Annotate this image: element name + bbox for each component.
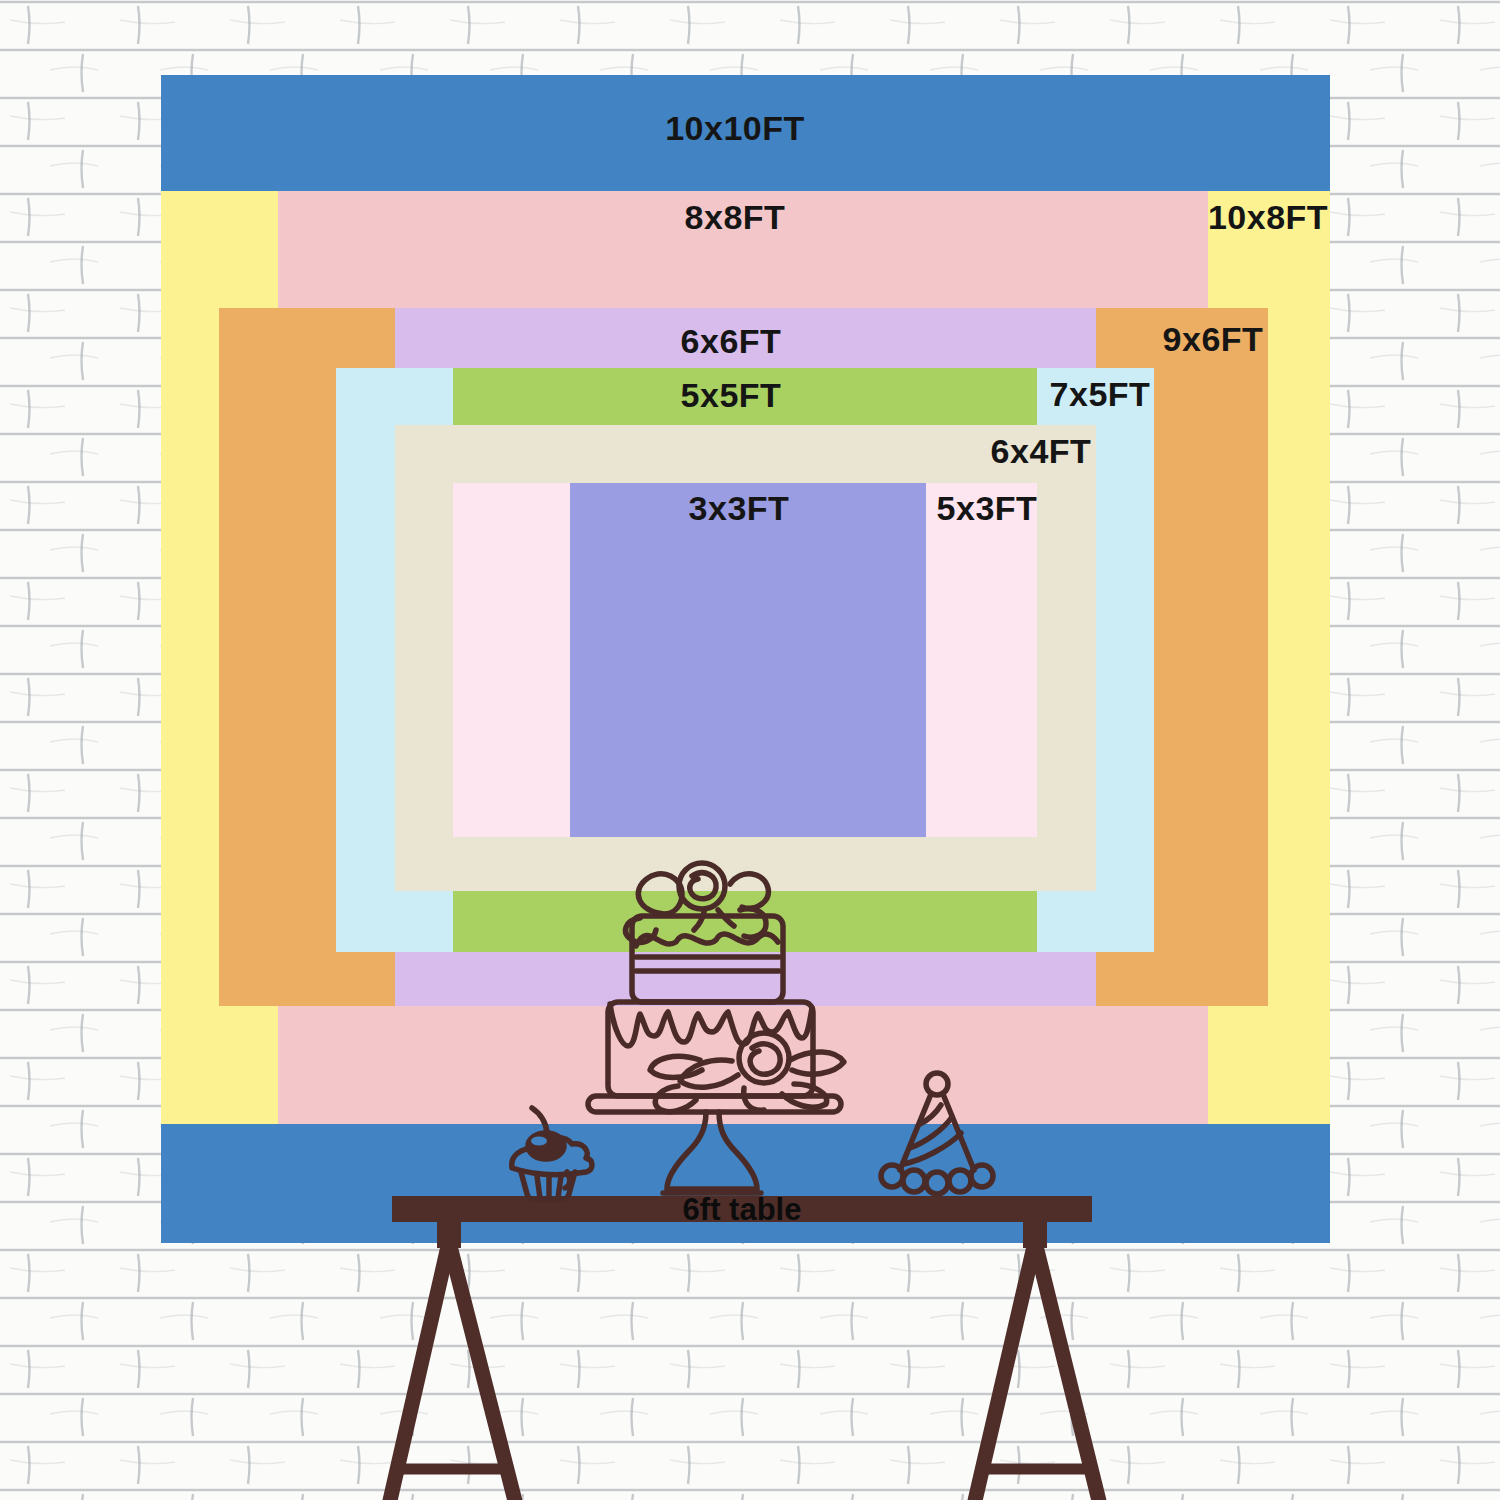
table-icon [389,1196,1100,1500]
table-size-label: 6ft table [683,1192,802,1228]
backdrop-size-chart: 10x10FT 10x8FT 8x8FT 9x6FT 6x6FT 7x5FT 5… [0,0,1500,1500]
cake-icon [588,863,844,1193]
cupcake-icon [512,1108,592,1200]
party-hat-icon [881,1073,993,1194]
decoration-artwork [0,0,1500,1500]
